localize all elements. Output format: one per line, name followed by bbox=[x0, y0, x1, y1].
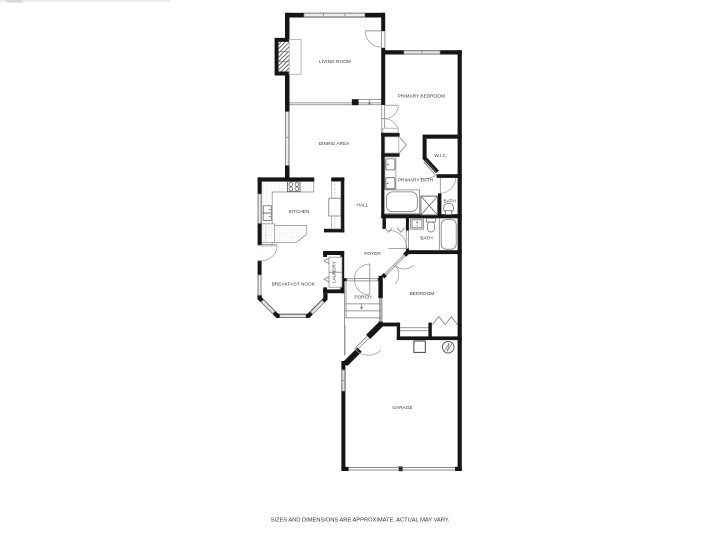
svg-text:PORCH: PORCH bbox=[354, 295, 372, 301]
svg-text:PRIMARY BATH: PRIMARY BATH bbox=[398, 178, 434, 184]
svg-text:LIVING ROOM: LIVING ROOM bbox=[319, 59, 351, 65]
svg-text:KITCHEN: KITCHEN bbox=[289, 209, 310, 215]
svg-text:BATH: BATH bbox=[420, 235, 433, 241]
svg-text:BATH: BATH bbox=[444, 198, 457, 204]
svg-text:BEDROOM: BEDROOM bbox=[410, 291, 435, 297]
svg-text:BREAKFAST NOOK: BREAKFAST NOOK bbox=[272, 281, 316, 287]
svg-text:W.I.C.: W.I.C. bbox=[434, 153, 447, 159]
svg-text:GARAGE: GARAGE bbox=[392, 405, 412, 411]
svg-text:FOYER: FOYER bbox=[364, 251, 381, 257]
svg-text:PRIMARY BEDROOM: PRIMARY BEDROOM bbox=[398, 93, 445, 99]
svg-text:HALL: HALL bbox=[357, 203, 369, 209]
svg-text:DINING AREA: DINING AREA bbox=[319, 141, 350, 147]
svg-text:LAUNDRY: LAUNDRY bbox=[331, 261, 336, 282]
svg-text:SIZES AND DIMENSIONS ARE APPRO: SIZES AND DIMENSIONS ARE APPROXIMATE, AC… bbox=[271, 517, 450, 523]
